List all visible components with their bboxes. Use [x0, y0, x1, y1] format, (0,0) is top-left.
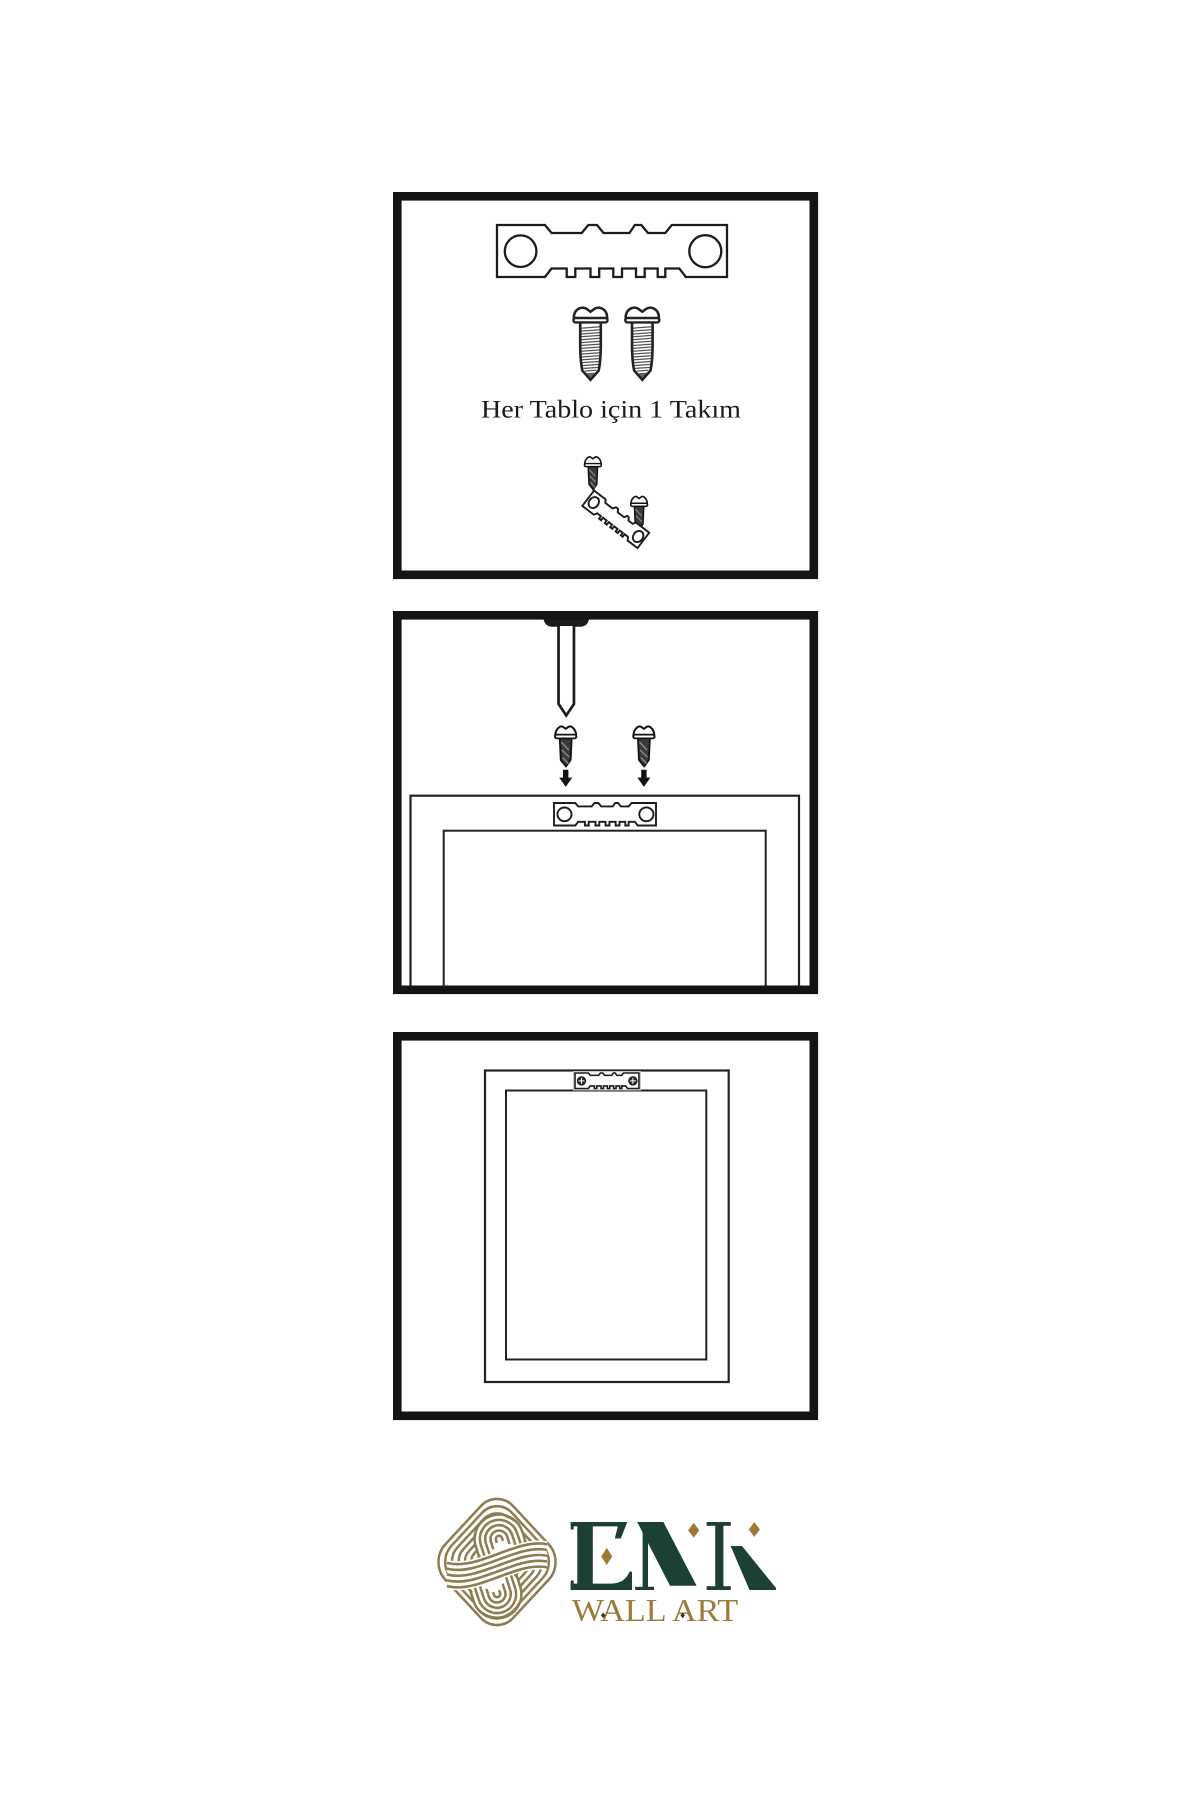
svg-text:WALL ART: WALL ART — [572, 1592, 739, 1628]
svg-text:Her Tablo için 1 Takım: Her Tablo için 1 Takım — [481, 395, 741, 424]
